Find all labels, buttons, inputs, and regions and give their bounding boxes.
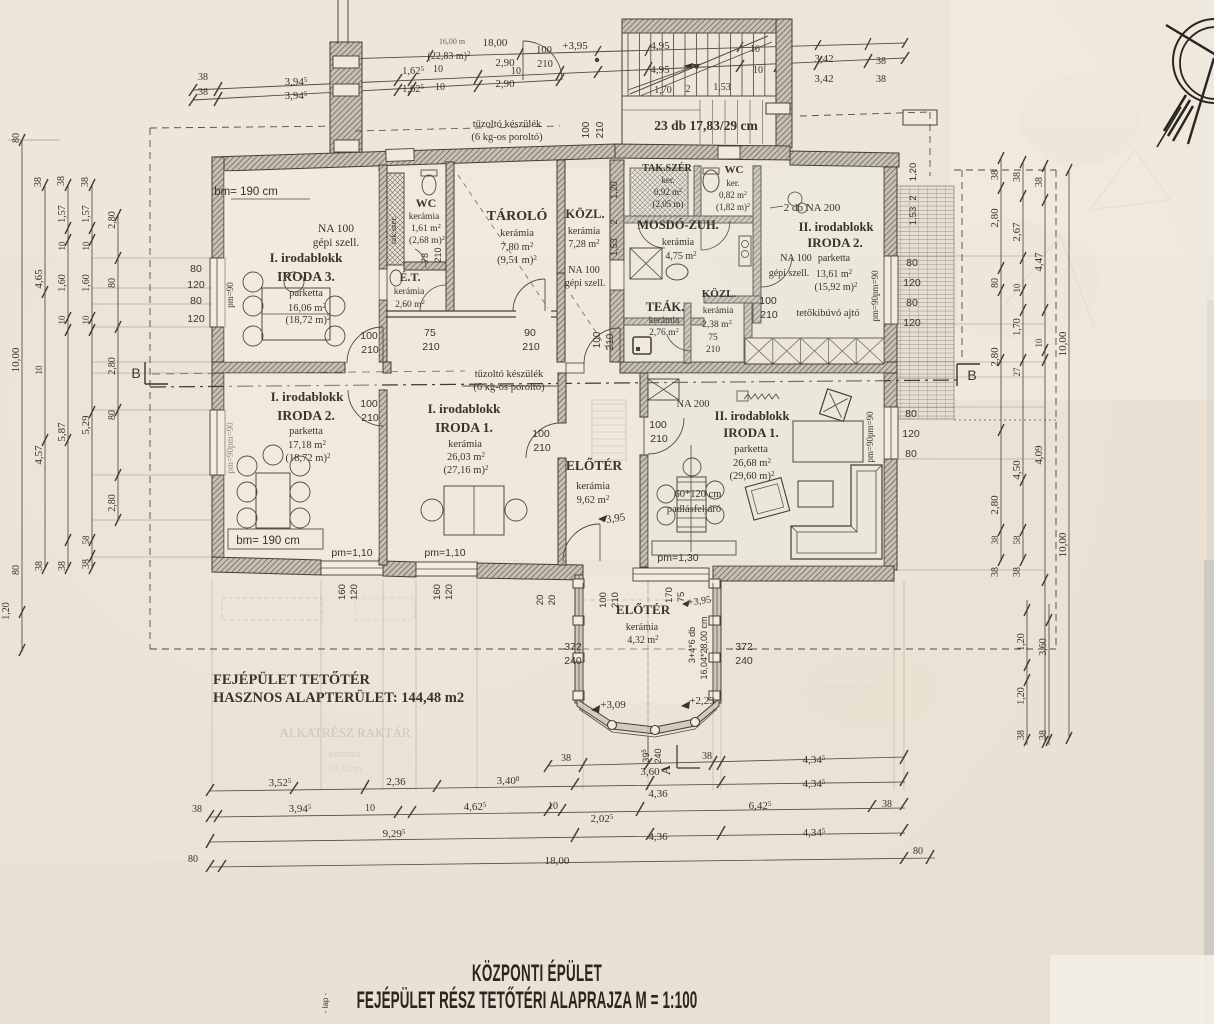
svg-text:1,53: 1,53 [908, 207, 919, 226]
svg-text:KÖZPONTI ÉPÜLET: KÖZPONTI ÉPÜLET [472, 959, 602, 987]
svg-text:9,62 m2: 9,62 m2 [577, 494, 610, 506]
svg-text:I. irodablokk: I. irodablokk [270, 250, 344, 265]
svg-text:10: 10 [1012, 283, 1022, 293]
svg-text:38: 38 [80, 177, 91, 187]
svg-text:4,09: 4,09 [1033, 445, 1045, 465]
svg-text:100: 100 [759, 295, 777, 307]
svg-text:(1,82 m)2: (1,82 m)2 [716, 202, 750, 212]
svg-text:1,60: 1,60 [57, 274, 68, 292]
svg-text:210: 210 [595, 121, 606, 138]
svg-text:NA 100: NA 100 [780, 253, 811, 264]
svg-text:16,00 m: 16,00 m [439, 37, 466, 46]
svg-text:3,42: 3,42 [814, 73, 833, 85]
svg-text:II. irodablokk: II. irodablokk [715, 409, 790, 423]
svg-text:NA 200: NA 200 [677, 399, 710, 410]
svg-text:kerámia: kerámia [626, 622, 659, 633]
svg-text:240: 240 [735, 655, 753, 667]
svg-text:WC: WC [725, 164, 744, 176]
svg-text:(29,60 m)2: (29,60 m)2 [730, 470, 775, 482]
svg-text:14,52 m: 14,52 m [329, 764, 362, 775]
svg-text:3,42: 3,42 [814, 53, 833, 65]
svg-text:10: 10 [81, 241, 91, 251]
svg-text:38: 38 [990, 535, 1000, 545]
svg-text:2,67: 2,67 [1011, 222, 1023, 242]
svg-text:18,00: 18,00 [483, 37, 508, 49]
svg-text:210: 210 [361, 412, 379, 424]
svg-text:26,68 m2: 26,68 m2 [733, 457, 771, 469]
svg-text:38: 38 [1012, 567, 1023, 577]
svg-text:0,92 m2: 0,92 m2 [654, 187, 682, 197]
svg-text:(2,05 m): (2,05 m) [653, 199, 684, 209]
svg-text:parketta: parketta [289, 288, 323, 299]
svg-text:TEÁK.: TEÁK. [646, 300, 685, 314]
svg-text:38: 38 [34, 561, 45, 571]
svg-text:1,70: 1,70 [1012, 318, 1023, 336]
svg-text:(2,68 m)2: (2,68 m)2 [409, 235, 445, 246]
svg-text:gépi szell.: gépi szell. [565, 278, 606, 289]
svg-text:1,20: 1,20 [609, 181, 619, 199]
svg-text:80: 80 [905, 448, 917, 460]
svg-text:10: 10 [365, 803, 375, 814]
svg-text:80: 80 [990, 278, 1001, 288]
svg-text:38: 38 [198, 72, 208, 83]
svg-text:100: 100 [592, 331, 603, 348]
svg-text:1,57: 1,57 [81, 205, 92, 223]
svg-text:372: 372 [735, 641, 753, 653]
svg-text:7,80 m2: 7,80 m2 [501, 241, 534, 253]
svg-text:tak.szer.: tak.szer. [388, 216, 398, 244]
svg-text:10,00: 10,00 [1057, 532, 1069, 557]
svg-text:4,47: 4,47 [1033, 252, 1045, 272]
svg-text:NA 100: NA 100 [318, 223, 354, 235]
svg-text:210: 210 [605, 333, 616, 350]
svg-text:80: 80 [906, 257, 918, 269]
svg-text:1,53: 1,53 [713, 82, 731, 93]
svg-text:(6 kg-os poroltó): (6 kg-os poroltó) [471, 132, 543, 143]
svg-text:1,20: 1,20 [1016, 687, 1027, 705]
svg-text:1,53: 1,53 [609, 238, 619, 256]
svg-text:23 db 17,83/29 cm: 23 db 17,83/29 cm [654, 118, 758, 133]
svg-text:38: 38 [1038, 730, 1049, 740]
svg-text:10: 10 [753, 65, 763, 76]
svg-text:4,75 m2: 4,75 m2 [665, 250, 697, 262]
svg-text:38: 38 [1034, 177, 1045, 187]
svg-text:NA 100: NA 100 [568, 265, 599, 276]
svg-text:KÖZL.: KÖZL. [565, 207, 604, 221]
svg-text:+2,23: +2,23 [689, 695, 715, 707]
svg-text:120: 120 [187, 279, 205, 291]
svg-text:7,28 m2: 7,28 m2 [568, 238, 600, 250]
svg-text:120: 120 [349, 584, 360, 600]
svg-text:kerámia: kerámia [448, 439, 482, 450]
svg-text:I. irodablokk: I. irodablokk [271, 389, 345, 404]
svg-text:+3,09: +3,09 [600, 699, 626, 711]
svg-text:tűzoltó készülék: tűzoltó készülék [475, 369, 544, 380]
svg-text:13,61 m2: 13,61 m2 [816, 268, 853, 280]
svg-text:5,29: 5,29 [80, 415, 92, 435]
svg-text:(9,51 m)2: (9,51 m)2 [497, 254, 537, 266]
svg-text:58: 58 [1012, 535, 1022, 545]
svg-text:pm=1,10: pm=1,10 [331, 547, 372, 559]
svg-text:80: 80 [11, 133, 22, 143]
svg-text:10: 10 [511, 66, 521, 77]
svg-text:38: 38 [1012, 172, 1023, 182]
svg-text:80: 80 [188, 854, 198, 865]
svg-text:2: 2 [686, 84, 691, 95]
svg-text:20: 20 [535, 595, 546, 606]
svg-text:80: 80 [190, 295, 202, 307]
svg-text:75: 75 [676, 592, 687, 603]
svg-text:4,36: 4,36 [648, 788, 668, 800]
svg-text:372: 372 [564, 641, 582, 653]
svg-text:4,65: 4,65 [33, 269, 45, 289]
svg-text:(18,72 m)2: (18,72 m)2 [286, 452, 331, 464]
svg-text:MOSDÓ-ZUH.: MOSDÓ-ZUH. [637, 218, 719, 232]
svg-text:bm= 190 cm: bm= 190 cm [236, 535, 300, 547]
svg-text:- lap -: - lap - [321, 992, 330, 1013]
svg-text:3+4*6 db: 3+4*6 db [687, 627, 697, 663]
svg-text:210: 210 [422, 341, 440, 353]
svg-text:3,60: 3,60 [640, 766, 660, 778]
svg-text:100: 100 [360, 330, 378, 342]
svg-text:1,57: 1,57 [57, 205, 68, 223]
svg-text:TÁROLÓ: TÁROLÓ [487, 207, 548, 224]
svg-text:(6 kg-os poroltó): (6 kg-os poroltó) [473, 382, 545, 393]
svg-text:160: 160 [432, 584, 443, 600]
svg-text:10: 10 [57, 315, 67, 325]
svg-text:B: B [967, 367, 976, 383]
svg-text:kerámia: kerámia [703, 306, 734, 316]
svg-text:1,20: 1,20 [908, 163, 919, 182]
svg-text:FEJÉPÜLET RÉSZ TETŐTÉRI ALAPRA: FEJÉPÜLET RÉSZ TETŐTÉRI ALAPRAJZA M = 1:… [357, 986, 698, 1014]
svg-text:26,03 m2: 26,03 m2 [447, 451, 485, 463]
svg-text:38: 38 [702, 751, 712, 762]
svg-text:10,00: 10,00 [1057, 331, 1069, 356]
svg-text:pm=1,30: pm=1,30 [657, 552, 698, 564]
svg-text:38: 38 [33, 177, 44, 187]
svg-text:+3,95: +3,95 [562, 40, 588, 52]
svg-text:Kezelési terv: Kezelési terv [824, 682, 876, 693]
svg-text:tűzoltó készülék: tűzoltó készülék [473, 119, 542, 130]
svg-text:4,57: 4,57 [33, 445, 45, 465]
svg-text:pm=90: pm=90 [225, 282, 235, 308]
svg-text:2,38 m2: 2,38 m2 [702, 319, 732, 330]
svg-text:20: 20 [547, 595, 558, 606]
svg-text:2,80: 2,80 [989, 347, 1001, 367]
svg-text:2,76 m2: 2,76 m2 [649, 327, 679, 338]
svg-text:kerámia: kerámia [662, 237, 695, 248]
svg-text:pm=1,10: pm=1,10 [424, 547, 465, 559]
svg-text:bm= 190 cm: bm= 190 cm [214, 186, 278, 198]
svg-text:10: 10 [1034, 338, 1044, 348]
svg-text:10: 10 [750, 44, 760, 55]
svg-text:I. irodablokk: I. irodablokk [428, 401, 502, 416]
svg-text:240: 240 [564, 655, 582, 667]
svg-text:10: 10 [81, 315, 91, 325]
svg-text:2: 2 [908, 195, 919, 200]
svg-text:pm=90pm=90: pm=90pm=90 [865, 411, 875, 463]
svg-text:1,20: 1,20 [1, 602, 12, 620]
svg-text:210: 210 [533, 442, 551, 454]
svg-text:IRODA 2.: IRODA 2. [277, 408, 335, 423]
svg-text:4,36: 4,36 [648, 831, 668, 843]
svg-text:IRODA 1.: IRODA 1. [723, 425, 779, 440]
svg-text:FEJÉPÜLET TETŐTÉR: FEJÉPÜLET TETŐTÉR [213, 671, 371, 688]
svg-text:38: 38 [198, 87, 208, 98]
svg-text:kerámia: kerámia [329, 749, 362, 760]
svg-text:120: 120 [903, 317, 921, 329]
svg-text:210: 210 [522, 341, 540, 353]
svg-text:5,87: 5,87 [56, 422, 68, 442]
svg-text:17,18 m2: 17,18 m2 [288, 439, 326, 451]
svg-text:2,80: 2,80 [989, 495, 1001, 515]
svg-text:II. irodablokk: II. irodablokk [799, 220, 874, 234]
svg-text:100: 100 [360, 398, 378, 410]
svg-text:kerámia: kerámia [649, 316, 680, 326]
svg-text:kerámia: kerámia [394, 287, 425, 297]
svg-text:3,60: 3,60 [1038, 638, 1049, 656]
svg-text:(15,92 m)2: (15,92 m)2 [815, 281, 858, 293]
svg-text:100: 100 [649, 419, 667, 431]
svg-text:210: 210 [760, 309, 778, 321]
svg-text:160: 160 [337, 584, 348, 600]
svg-text:ELŐTÉR: ELŐTÉR [616, 602, 671, 617]
svg-text:1,60: 1,60 [81, 274, 92, 292]
svg-text:58: 58 [81, 535, 91, 545]
svg-text:(18,72 m)2: (18,72 m)2 [286, 314, 331, 326]
svg-text:38: 38 [1016, 730, 1027, 740]
svg-text:38: 38 [561, 753, 571, 764]
svg-text:38: 38 [81, 559, 92, 569]
svg-text:38: 38 [990, 567, 1001, 577]
svg-text:2,80: 2,80 [107, 211, 118, 229]
svg-text:4,95: 4,95 [650, 40, 670, 52]
svg-text:gépi szell.: gépi szell. [313, 237, 360, 249]
svg-text:kerámia: kerámia [568, 226, 601, 237]
svg-text:100: 100 [581, 121, 592, 138]
svg-text:10: 10 [548, 801, 558, 812]
svg-text:(22,83 m)2: (22,83 m)2 [428, 50, 471, 62]
svg-text:ker.: ker. [726, 178, 739, 188]
svg-text:80: 80 [11, 565, 22, 575]
svg-text:16,06 m2: 16,06 m2 [288, 302, 326, 314]
svg-text:75: 75 [424, 327, 436, 339]
svg-text:10: 10 [34, 365, 44, 375]
svg-text:38: 38 [56, 176, 67, 186]
svg-text:170: 170 [664, 587, 675, 603]
svg-text:100: 100 [598, 592, 609, 608]
svg-text:ker.: ker. [661, 175, 674, 185]
svg-text:HASZNOS ALAPTERÜLET: 144,48 m2: HASZNOS ALAPTERÜLET: 144,48 m2 [213, 689, 464, 706]
svg-text:80: 80 [190, 263, 202, 275]
svg-text:120: 120 [903, 277, 921, 289]
svg-text:80: 80 [107, 410, 118, 420]
svg-text:27: 27 [1012, 367, 1022, 377]
svg-text:WC: WC [416, 196, 437, 210]
svg-text:IRODA 2.: IRODA 2. [807, 235, 863, 250]
svg-text:2,80: 2,80 [107, 494, 118, 512]
svg-text:240: 240 [653, 748, 663, 763]
svg-text:10: 10 [435, 82, 445, 93]
svg-text:IRODA 1.: IRODA 1. [435, 420, 493, 435]
svg-text:TAK.SZÉR: TAK.SZÉR [642, 162, 692, 174]
svg-text:1,61 m2: 1,61 m2 [411, 223, 441, 234]
svg-text:2 db NA 200: 2 db NA 200 [784, 202, 841, 214]
svg-text:80: 80 [905, 408, 917, 420]
svg-text:1,20: 1,20 [1016, 633, 1027, 651]
svg-text:kerámia: kerámia [500, 228, 534, 239]
svg-text:16,04*28,00 cm: 16,04*28,00 cm [699, 616, 709, 679]
svg-text:ALKATRÉSZ RAKTÁR: ALKATRÉSZ RAKTÁR [279, 725, 410, 740]
svg-text:tetőkibúvó ajtó: tetőkibúvó ajtó [796, 308, 859, 319]
svg-text:210: 210 [610, 592, 621, 608]
svg-text:210: 210 [433, 247, 443, 262]
svg-text:120: 120 [187, 313, 205, 325]
svg-text:78: 78 [420, 253, 430, 263]
svg-text:80: 80 [913, 846, 923, 857]
svg-text:80: 80 [906, 297, 918, 309]
svg-text:38: 38 [876, 74, 886, 85]
svg-text:A: A [658, 765, 673, 775]
svg-text:38: 38 [876, 56, 886, 67]
svg-text:2,80: 2,80 [989, 208, 1001, 228]
svg-text:É.T.: É.T. [399, 270, 420, 284]
svg-text:pm=90pm=90: pm=90pm=90 [870, 270, 880, 322]
svg-text:10: 10 [57, 241, 67, 251]
svg-text:210: 210 [650, 433, 668, 445]
svg-text:38: 38 [192, 804, 202, 815]
svg-text:120: 120 [444, 584, 455, 600]
svg-text:38: 38 [57, 561, 68, 571]
svg-text:parketta: parketta [734, 444, 768, 455]
svg-text:90: 90 [524, 327, 536, 339]
svg-text:80: 80 [107, 278, 118, 288]
svg-text:2,80: 2,80 [107, 357, 118, 375]
svg-text:10: 10 [433, 64, 443, 75]
svg-text:parketta: parketta [818, 253, 851, 264]
svg-text:kerámia: kerámia [409, 212, 440, 222]
svg-text:10,00: 10,00 [10, 347, 22, 372]
svg-text:parketta: parketta [289, 426, 323, 437]
svg-text:18,00: 18,00 [545, 855, 570, 867]
svg-text:120: 120 [902, 428, 920, 440]
svg-text:4,32 m2: 4,32 m2 [627, 634, 659, 646]
svg-text:2,36: 2,36 [386, 776, 406, 788]
svg-text:2: 2 [609, 219, 619, 224]
svg-text:210: 210 [537, 59, 553, 70]
svg-text:2,90: 2,90 [495, 78, 515, 90]
svg-text:100: 100 [532, 428, 550, 440]
svg-text:210: 210 [706, 345, 721, 355]
svg-text:(27,16 m)2: (27,16 m)2 [444, 464, 489, 476]
svg-text:kerámia: kerámia [576, 481, 610, 492]
svg-text:KÖZL.: KÖZL. [702, 287, 737, 300]
svg-text:38: 38 [990, 170, 1001, 180]
svg-text:0,82 m2: 0,82 m2 [719, 190, 747, 200]
svg-text:4,50: 4,50 [1011, 460, 1023, 480]
svg-text:75: 75 [708, 333, 718, 343]
svg-text:210: 210 [361, 344, 379, 356]
svg-text:4,95: 4,95 [650, 64, 670, 76]
svg-text:38: 38 [882, 799, 892, 810]
